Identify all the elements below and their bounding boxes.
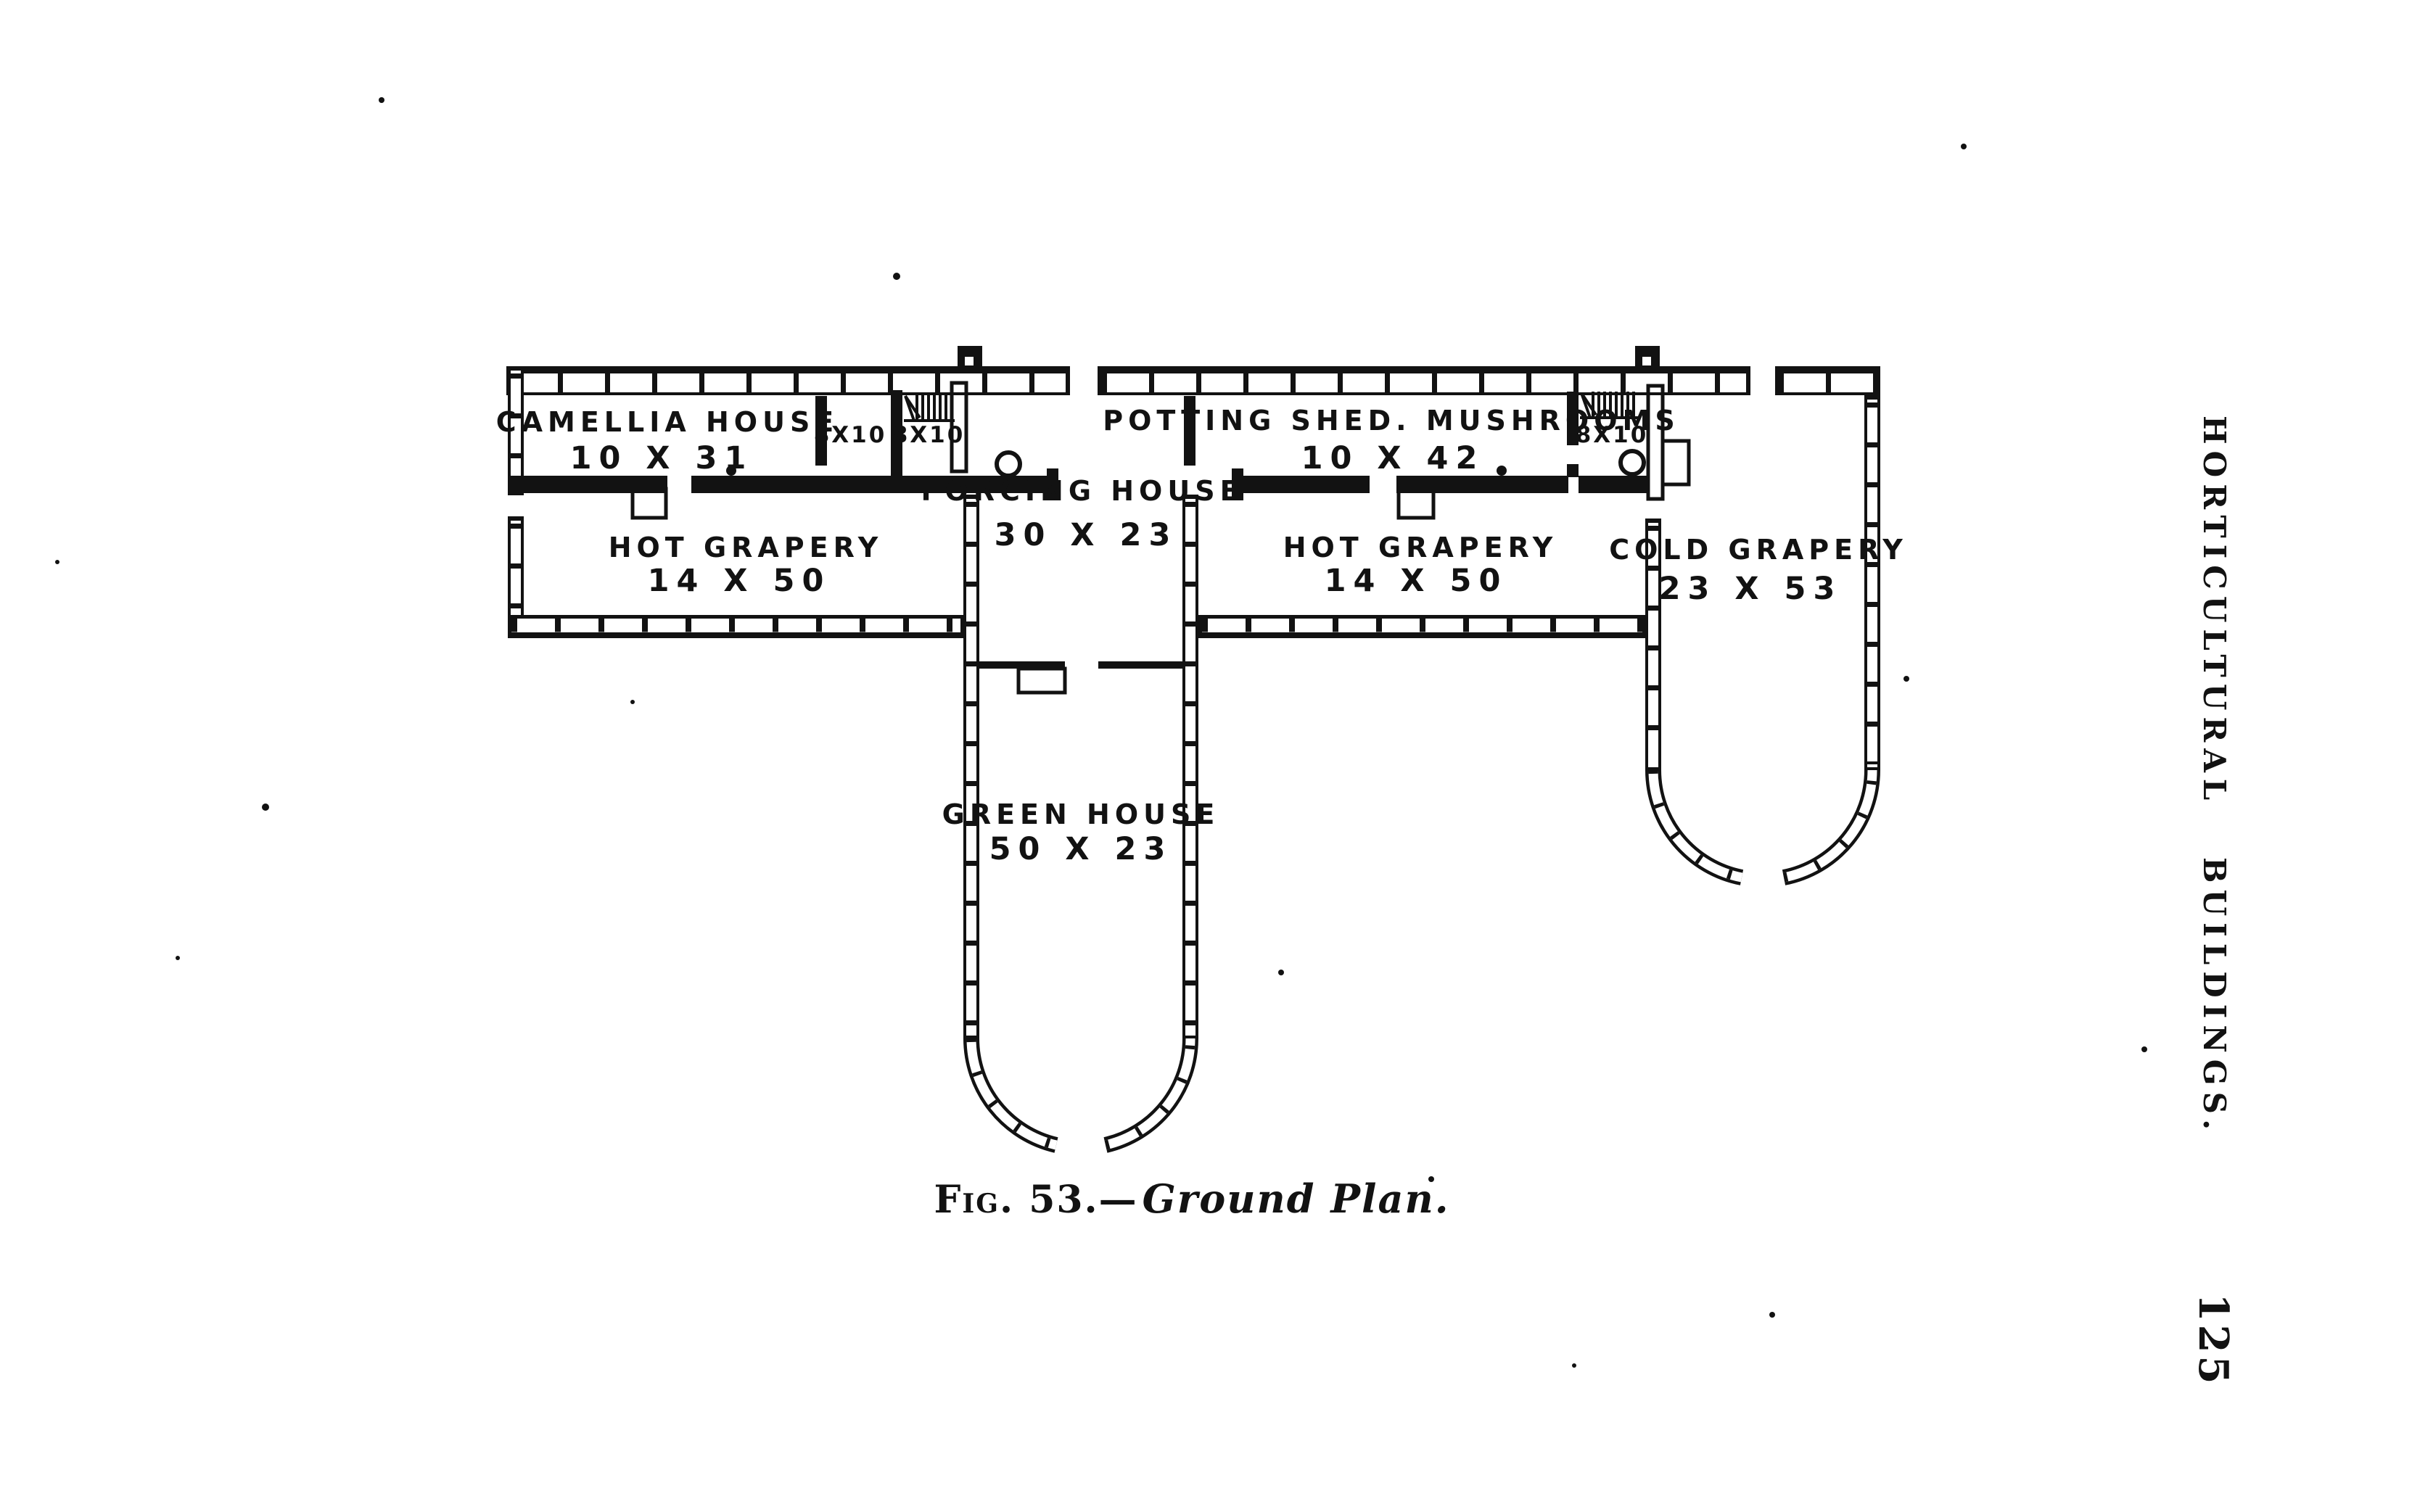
- room-dims-camellia: 10 X 31: [570, 440, 754, 476]
- hot-grapery-west-front-wall: [508, 615, 963, 638]
- room-dims-green-house: 50 X 23: [989, 831, 1173, 867]
- figure-caption-number: Fig. 53.—: [934, 1178, 1137, 1222]
- furnace-icon: [1663, 441, 1689, 484]
- green-house-curved-end: [971, 1038, 1190, 1145]
- room-label-hot-grapery-w: HOT GRAPERY: [609, 532, 884, 563]
- room-dims-cold-grapery: 23 X 53: [1659, 571, 1843, 607]
- figure-caption: Fig. 53.—Ground Plan.: [934, 1176, 1449, 1222]
- page-number: 125: [2189, 1294, 2237, 1387]
- room-label-small-2: 8X10: [892, 422, 966, 448]
- shed-room-partition-lower: [1567, 464, 1579, 477]
- running-header: HORTICULTURAL BUILDINGS.: [2197, 416, 2232, 1136]
- stairs-icon: [904, 394, 955, 421]
- scanned-page: CAMELLIA HOUSE 10 X 31 8X10 8X10 FORCING…: [0, 0, 2420, 1512]
- room-label-hot-grapery-e: HOT GRAPERY: [1283, 532, 1558, 563]
- right-wing-end-wall: [1648, 386, 1663, 499]
- room-dims-hot-grapery-e: 14 X 50: [1325, 563, 1508, 599]
- stove-icon: [997, 453, 1020, 476]
- stove-icon: [1621, 451, 1644, 474]
- hot-grapery-east-front-wall: [1198, 615, 1645, 638]
- room-label-forcing: FORCING HOUSE: [921, 475, 1243, 507]
- room-dims-potting-shed: 10 X 42: [1301, 440, 1485, 476]
- figure-caption-title: Ground Plan.: [1143, 1176, 1450, 1222]
- room-label-camellia: CAMELLIA HOUSE: [496, 406, 839, 438]
- green-house-back-line: [979, 661, 1182, 693]
- green-house-east-wall: [1182, 495, 1198, 1038]
- chimney-icon: [958, 346, 982, 369]
- room-label-small-1: 8X10: [814, 422, 887, 448]
- chimney-icon: [1635, 346, 1660, 369]
- ground-plan-figure: CAMELLIA HOUSE 10 X 31 8X10 8X10 FORCING…: [496, 346, 1908, 1222]
- north-wall: [506, 366, 1880, 395]
- room-dims-forcing: 30 X 23: [995, 517, 1178, 553]
- room-label-cold-grapery: COLD GRAPERY: [1609, 534, 1908, 566]
- cold-grapery-curved-end: [1653, 770, 1872, 877]
- room-label-small-3: 8X10: [1576, 422, 1649, 448]
- green-house-west-wall: [963, 495, 979, 1038]
- room-dims-hot-grapery-w: 14 X 50: [648, 563, 831, 599]
- cold-grapery-east-wall: [1864, 395, 1880, 770]
- room-label-green-house: GREEN HOUSE: [942, 798, 1220, 830]
